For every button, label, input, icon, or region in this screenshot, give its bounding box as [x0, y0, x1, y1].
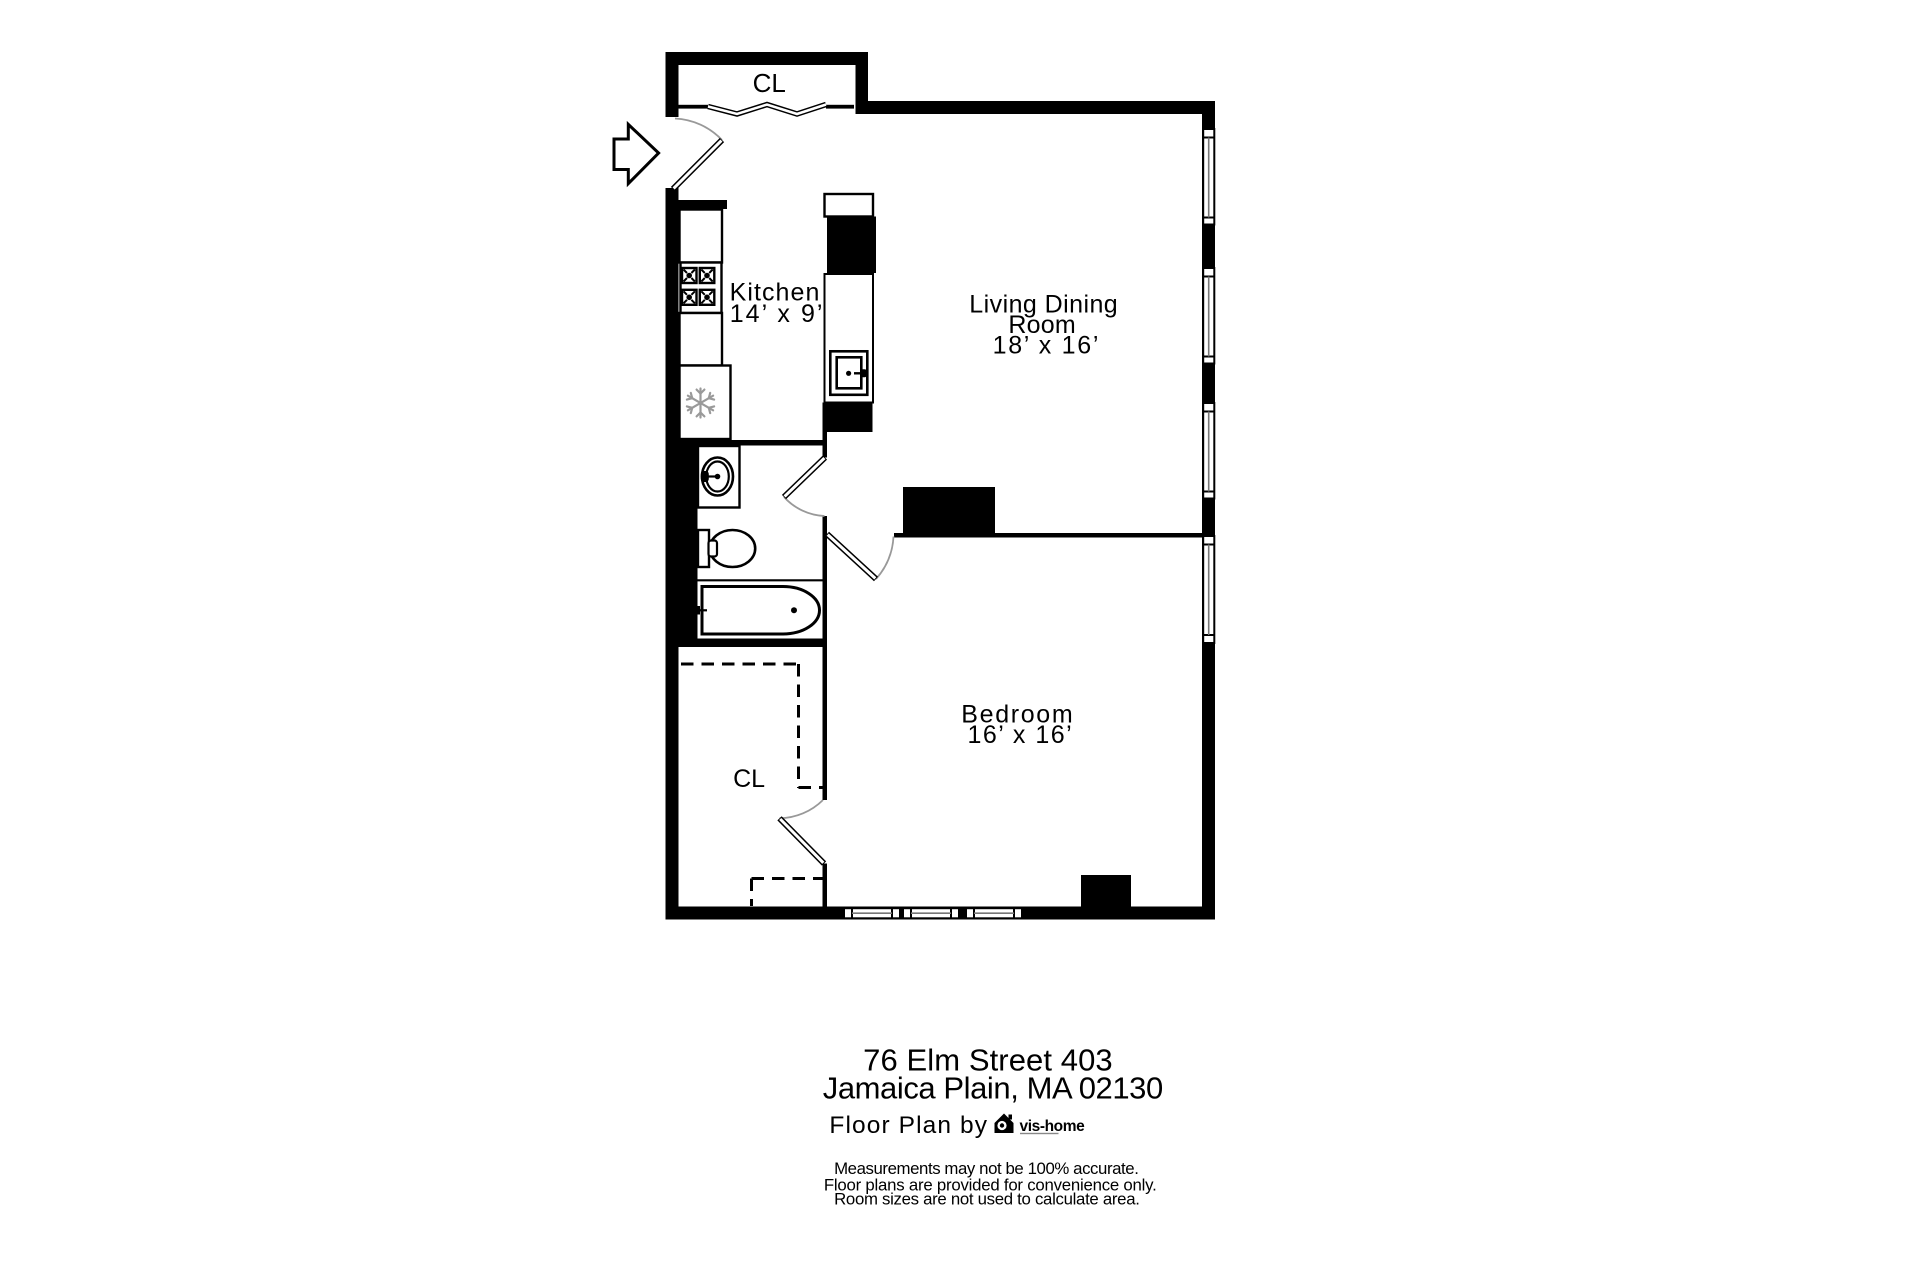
svg-text:Floor Plan by: Floor Plan by: [829, 1112, 987, 1139]
svg-text:Room sizes are not used to cal: Room sizes are not used to calculate are…: [834, 1190, 1140, 1209]
svg-text:CL: CL: [733, 765, 765, 793]
svg-text:18’ x 16’: 18’ x 16’: [993, 331, 1099, 359]
svg-text:CL: CL: [753, 68, 786, 98]
svg-text:16’ x 16’: 16’ x 16’: [968, 721, 1072, 749]
svg-text:vis-home: vis-home: [1020, 1118, 1086, 1135]
svg-text:Jamaica Plain, MA 02130: Jamaica Plain, MA 02130: [823, 1071, 1164, 1106]
